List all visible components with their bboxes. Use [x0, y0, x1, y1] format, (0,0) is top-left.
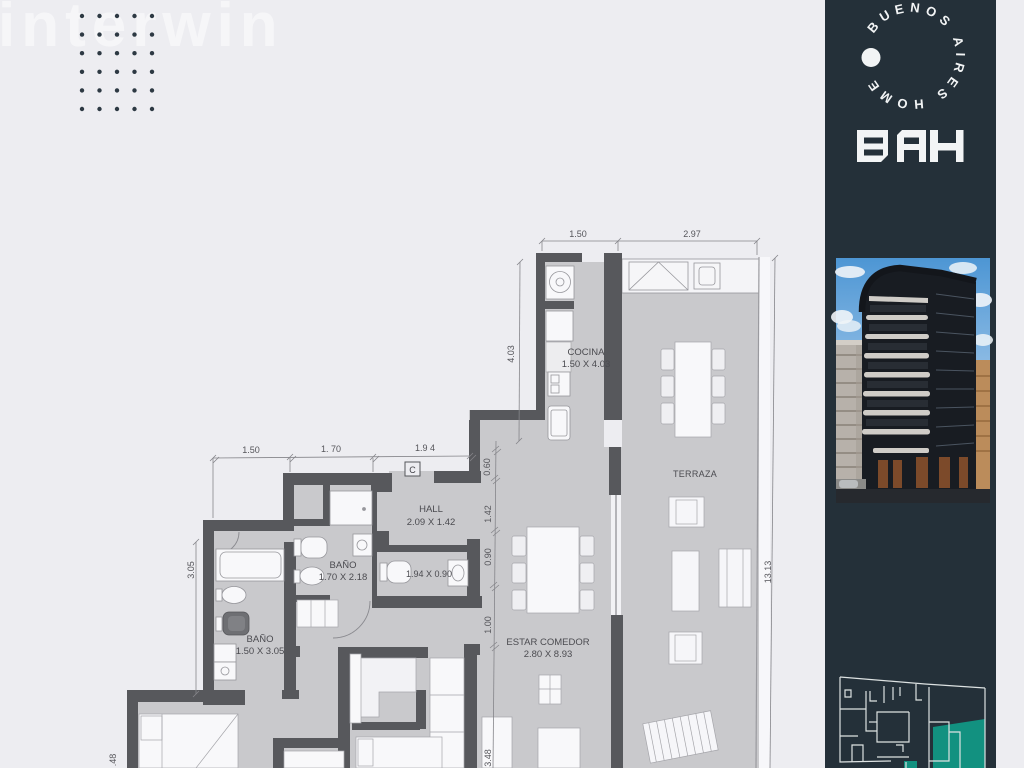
svg-text:C: C: [409, 465, 416, 475]
svg-text:1.50: 1.50: [242, 445, 260, 455]
svg-text:1.94 X 0.90: 1.94 X 0.90: [406, 569, 452, 579]
svg-text:.48: .48: [108, 754, 118, 767]
svg-text:1.50 X 3.05: 1.50 X 3.05: [236, 646, 285, 657]
svg-text:1.70 X 2.18: 1.70 X 2.18: [319, 572, 368, 583]
svg-text:1.42: 1.42: [483, 505, 493, 523]
svg-text:interwin: interwin: [0, 0, 284, 60]
svg-text:HALL: HALL: [419, 504, 443, 515]
svg-text:2.09 X 1.42: 2.09 X 1.42: [407, 517, 456, 528]
svg-text:4.03: 4.03: [506, 345, 516, 363]
svg-text:TERRAZA: TERRAZA: [673, 469, 717, 479]
svg-text:3.48: 3.48: [483, 749, 493, 767]
svg-text:2.97: 2.97: [683, 229, 701, 239]
svg-text:13.13: 13.13: [763, 561, 773, 584]
svg-text:0.90: 0.90: [483, 548, 493, 566]
svg-text:2.80 X 8.93: 2.80 X 8.93: [524, 649, 573, 660]
svg-text:1.50: 1.50: [569, 229, 587, 239]
svg-text:1. 70: 1. 70: [321, 444, 341, 454]
svg-text:1.9 4: 1.9 4: [415, 443, 435, 453]
svg-text:3.05: 3.05: [186, 561, 196, 579]
svg-text:BAÑO: BAÑO: [330, 560, 357, 571]
svg-text:BAÑO: BAÑO: [247, 634, 274, 645]
svg-text:1.00: 1.00: [483, 616, 493, 634]
svg-text:ESTAR COMEDOR: ESTAR COMEDOR: [506, 637, 589, 648]
svg-text:COCINA: COCINA: [568, 347, 606, 358]
svg-text:1.50 X 4.03: 1.50 X 4.03: [562, 359, 611, 370]
svg-text:0.60: 0.60: [482, 458, 492, 476]
